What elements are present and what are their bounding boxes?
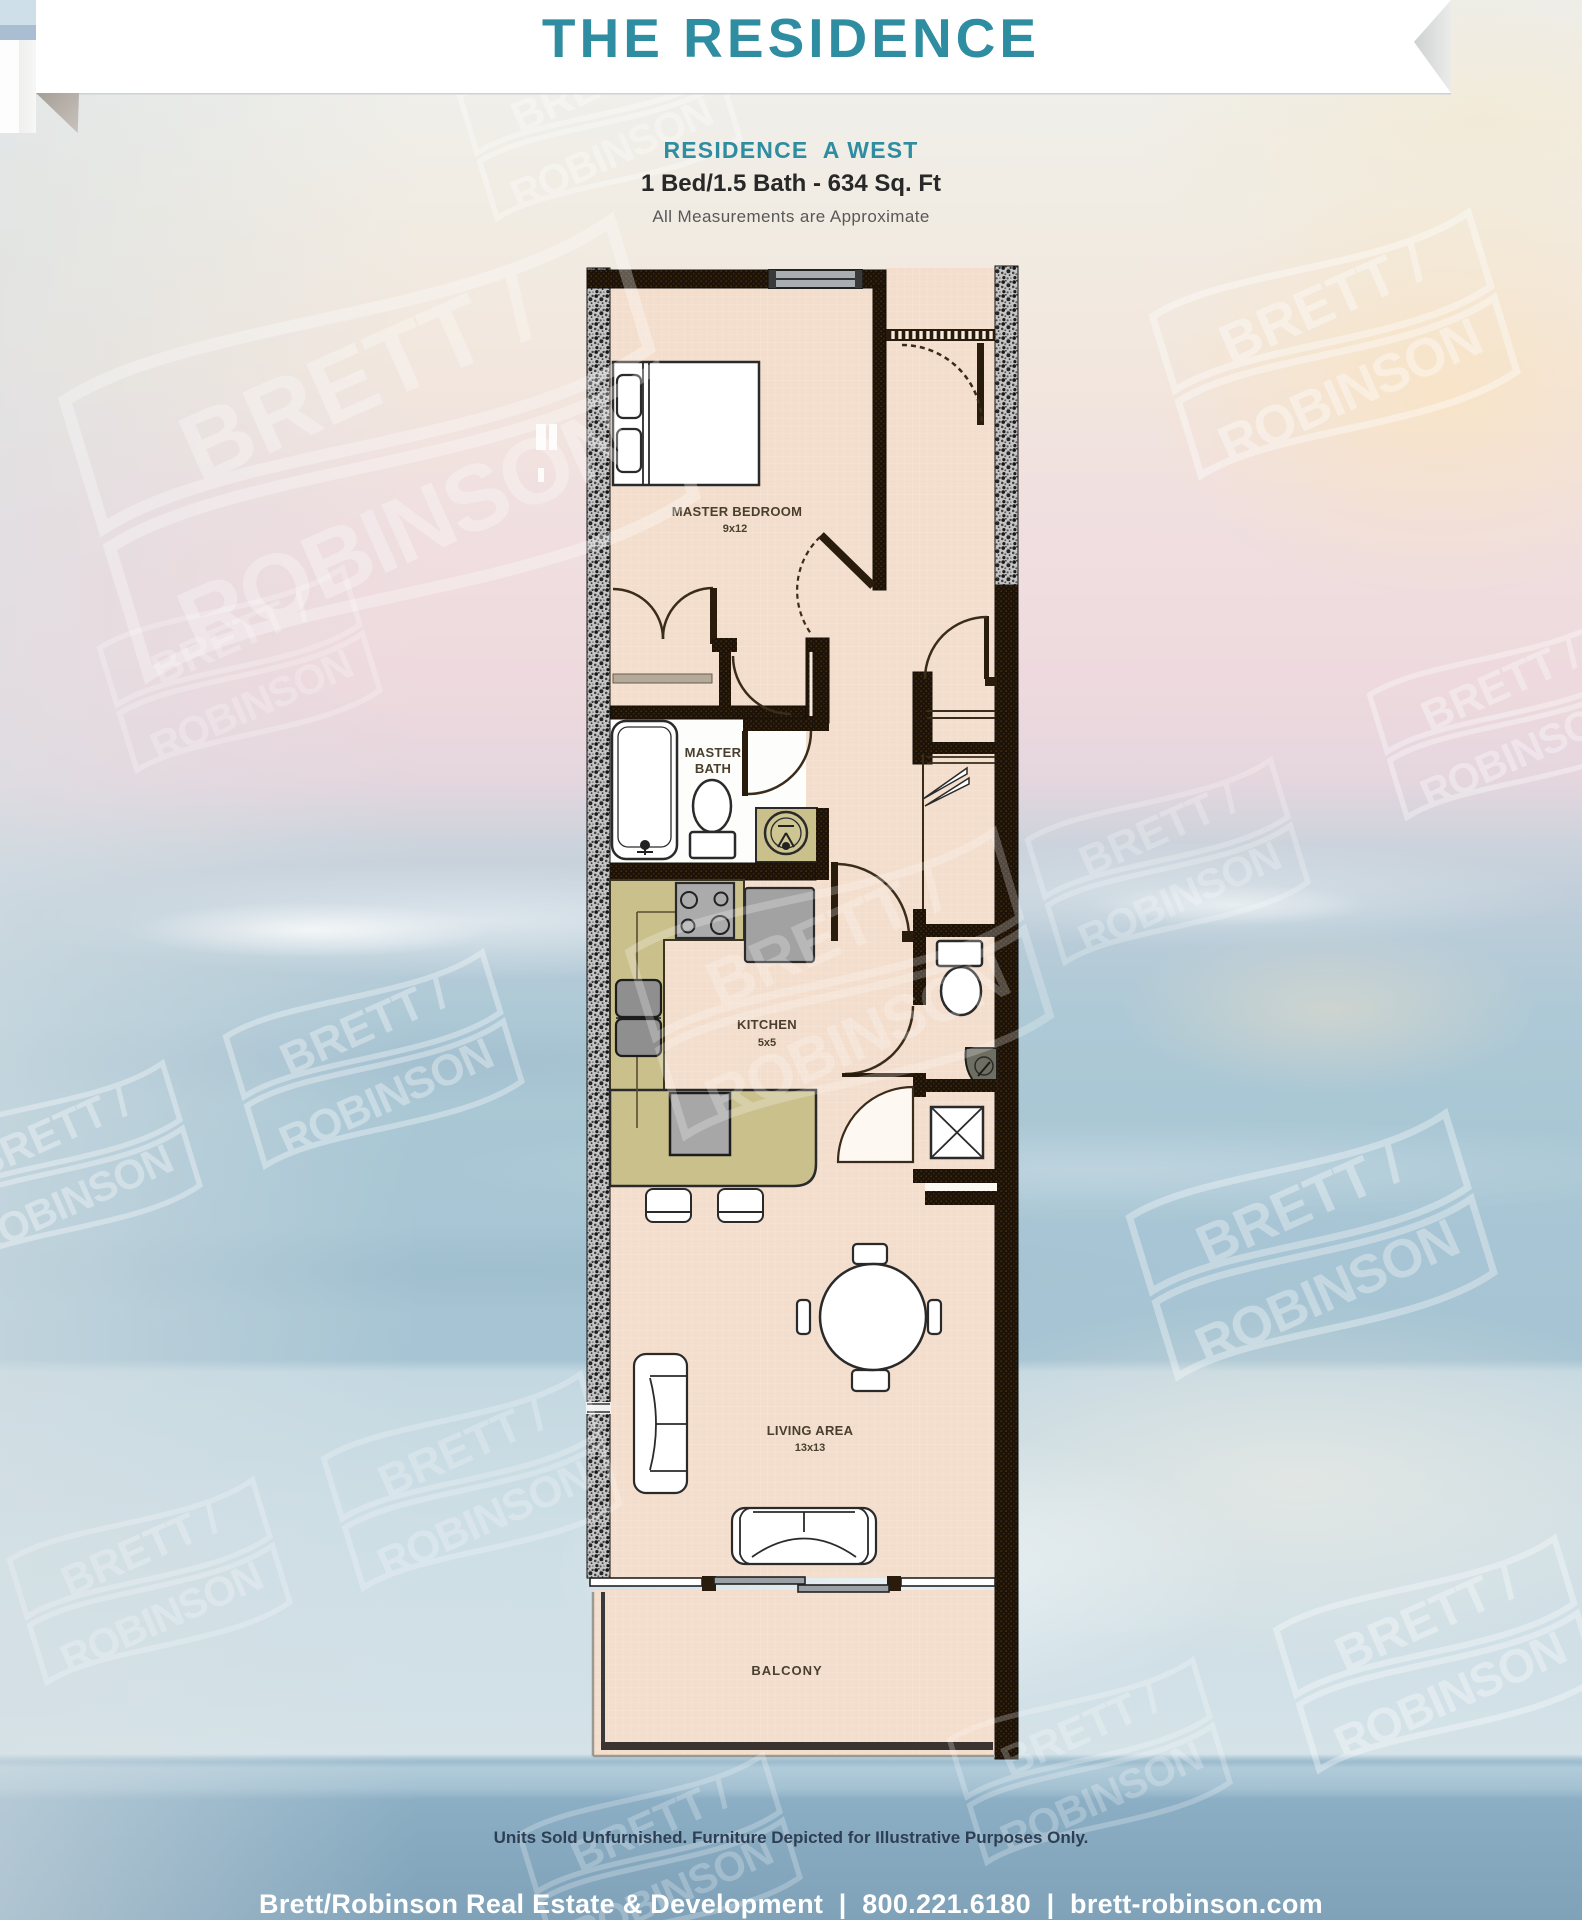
svg-text:MASTER: MASTER bbox=[685, 745, 742, 760]
svg-text:BALCONY: BALCONY bbox=[751, 1663, 822, 1678]
svg-text:9x12: 9x12 bbox=[723, 523, 747, 535]
svg-text:MASTER BEDROOM: MASTER BEDROOM bbox=[672, 504, 803, 519]
svg-text:13x13: 13x13 bbox=[795, 1442, 826, 1454]
svg-text:LIVING AREA: LIVING AREA bbox=[767, 1423, 854, 1438]
svg-text:BATH: BATH bbox=[695, 761, 731, 776]
